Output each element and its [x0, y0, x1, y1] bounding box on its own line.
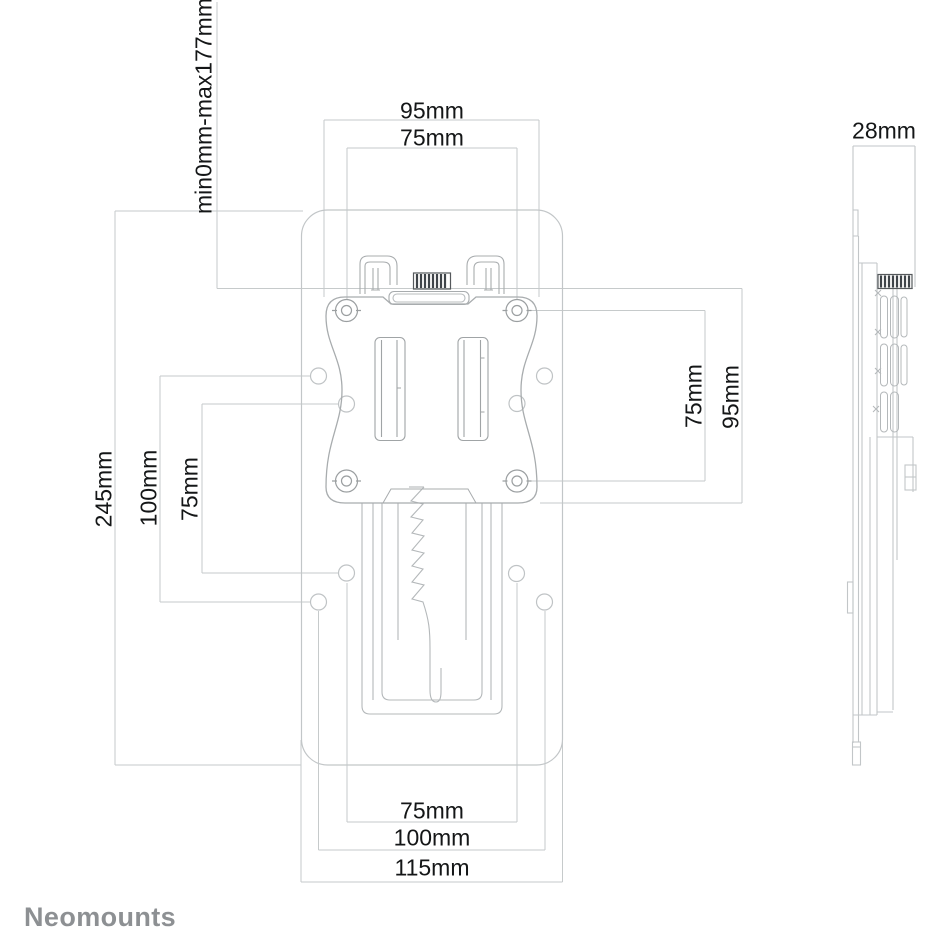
diagram-canvas: 95mm 75mm min0mm-max177mm 245mm 100mm 75… [0, 0, 936, 936]
vesa-screw-holes [332, 300, 532, 493]
dim-right-hole-spacing-75: 75mm [683, 364, 706, 428]
side-view [848, 146, 917, 765]
dim-top-outer-width: 95mm [400, 100, 464, 123]
side-bracket-detail [873, 290, 907, 432]
brand-logo: Neomounts [24, 902, 176, 933]
dim-bottom-hole-spacing-100: 100mm [394, 827, 471, 850]
dim-left-hole-spacing-100: 100mm [138, 450, 161, 527]
clamp-bar [389, 292, 469, 305]
ratchet-strip [409, 487, 441, 702]
dim-height-adjust-range: min0mm-max177mm [193, 0, 216, 214]
adapter-slots [375, 338, 488, 441]
dim-right-plate-height-95: 95mm [720, 365, 743, 429]
wall-plate-outline [302, 210, 563, 765]
vesa-adapter-plate [326, 297, 537, 503]
side-thumbwheel [878, 275, 912, 289]
dim-bottom-plate-width: 115mm [395, 857, 470, 880]
side-view-outline [848, 146, 917, 765]
dim-top-hole-spacing: 75mm [400, 127, 464, 150]
dim-plate-height: 245mm [93, 451, 116, 528]
thumbwheel-knob [414, 273, 451, 289]
dim-left-hole-spacing-75: 75mm [179, 457, 202, 521]
dim-side-depth: 28mm [852, 120, 916, 143]
slide-rails [362, 503, 502, 714]
dim-bottom-hole-spacing-75: 75mm [400, 800, 464, 823]
front-view [302, 210, 563, 765]
